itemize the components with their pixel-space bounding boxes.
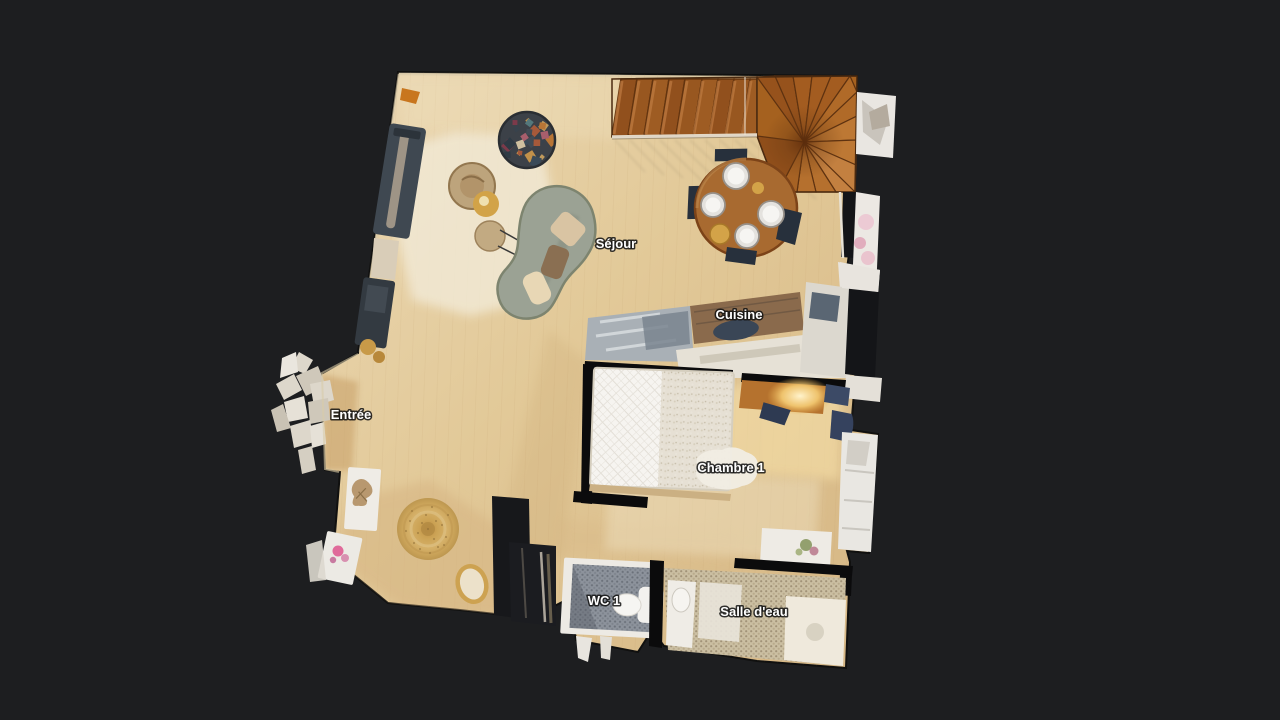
svg-text:Cuisine: Cuisine (716, 307, 763, 322)
svg-text:WC 1: WC 1 (588, 593, 621, 608)
svg-text:Salle d'eau: Salle d'eau (720, 604, 787, 619)
svg-text:Entrée: Entrée (331, 407, 371, 422)
svg-text:Chambre 1: Chambre 1 (697, 460, 764, 475)
svg-text:Séjour: Séjour (596, 236, 636, 251)
